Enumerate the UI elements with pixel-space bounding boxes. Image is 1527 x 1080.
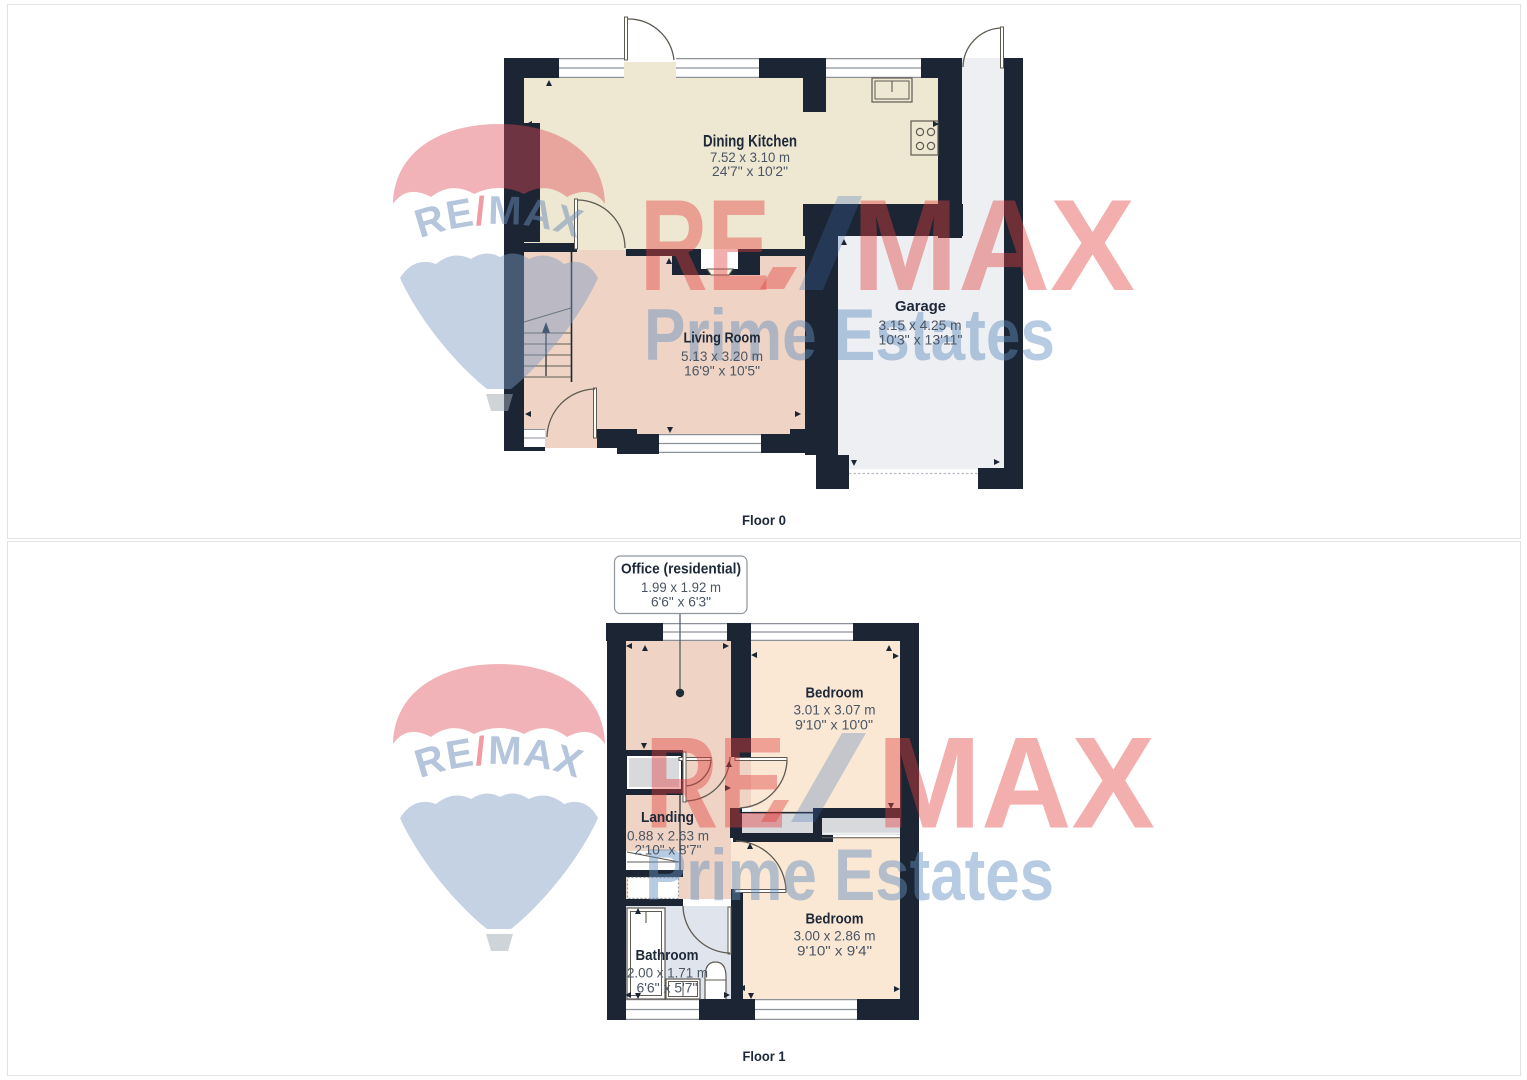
svg-text:MAX: MAX [877, 710, 1155, 856]
svg-text:10'3" x 13'11": 10'3" x 13'11" [879, 332, 963, 348]
svg-text:3.01 x 3.07 m: 3.01 x 3.07 m [794, 702, 876, 718]
svg-text:Office (residential): Office (residential) [621, 560, 741, 577]
svg-text:Bathroom: Bathroom [636, 947, 699, 964]
svg-text:Landing: Landing [641, 809, 694, 826]
svg-text:Prime Estates: Prime Estates [645, 835, 1054, 916]
svg-text:Garage: Garage [895, 298, 946, 315]
svg-text:6'6" x 5'7": 6'6" x 5'7" [637, 980, 698, 996]
svg-text:Dining Kitchen: Dining Kitchen [703, 132, 797, 151]
svg-text:16'9" x 10'5": 16'9" x 10'5" [684, 363, 760, 379]
svg-text:2.00 x 1.71 m: 2.00 x 1.71 m [627, 965, 708, 981]
svg-text:9'10" x 9'4": 9'10" x 9'4" [797, 943, 872, 959]
svg-text:Living Room: Living Room [684, 330, 761, 347]
svg-text:24'7" x 10'2": 24'7" x 10'2" [712, 163, 788, 179]
svg-text:6'6" x 6'3": 6'6" x 6'3" [651, 593, 711, 609]
svg-text:Floor 1: Floor 1 [743, 1048, 786, 1064]
svg-text:Bedroom: Bedroom [806, 685, 864, 702]
svg-text:Floor 0: Floor 0 [742, 512, 786, 528]
svg-text:2'10" x 8'7": 2'10" x 8'7" [635, 842, 702, 858]
svg-text:3.00 x 2.86 m: 3.00 x 2.86 m [794, 928, 876, 944]
svg-text:Bedroom: Bedroom [806, 911, 864, 928]
svg-text:9'10" x 10'0": 9'10" x 10'0" [795, 717, 873, 733]
